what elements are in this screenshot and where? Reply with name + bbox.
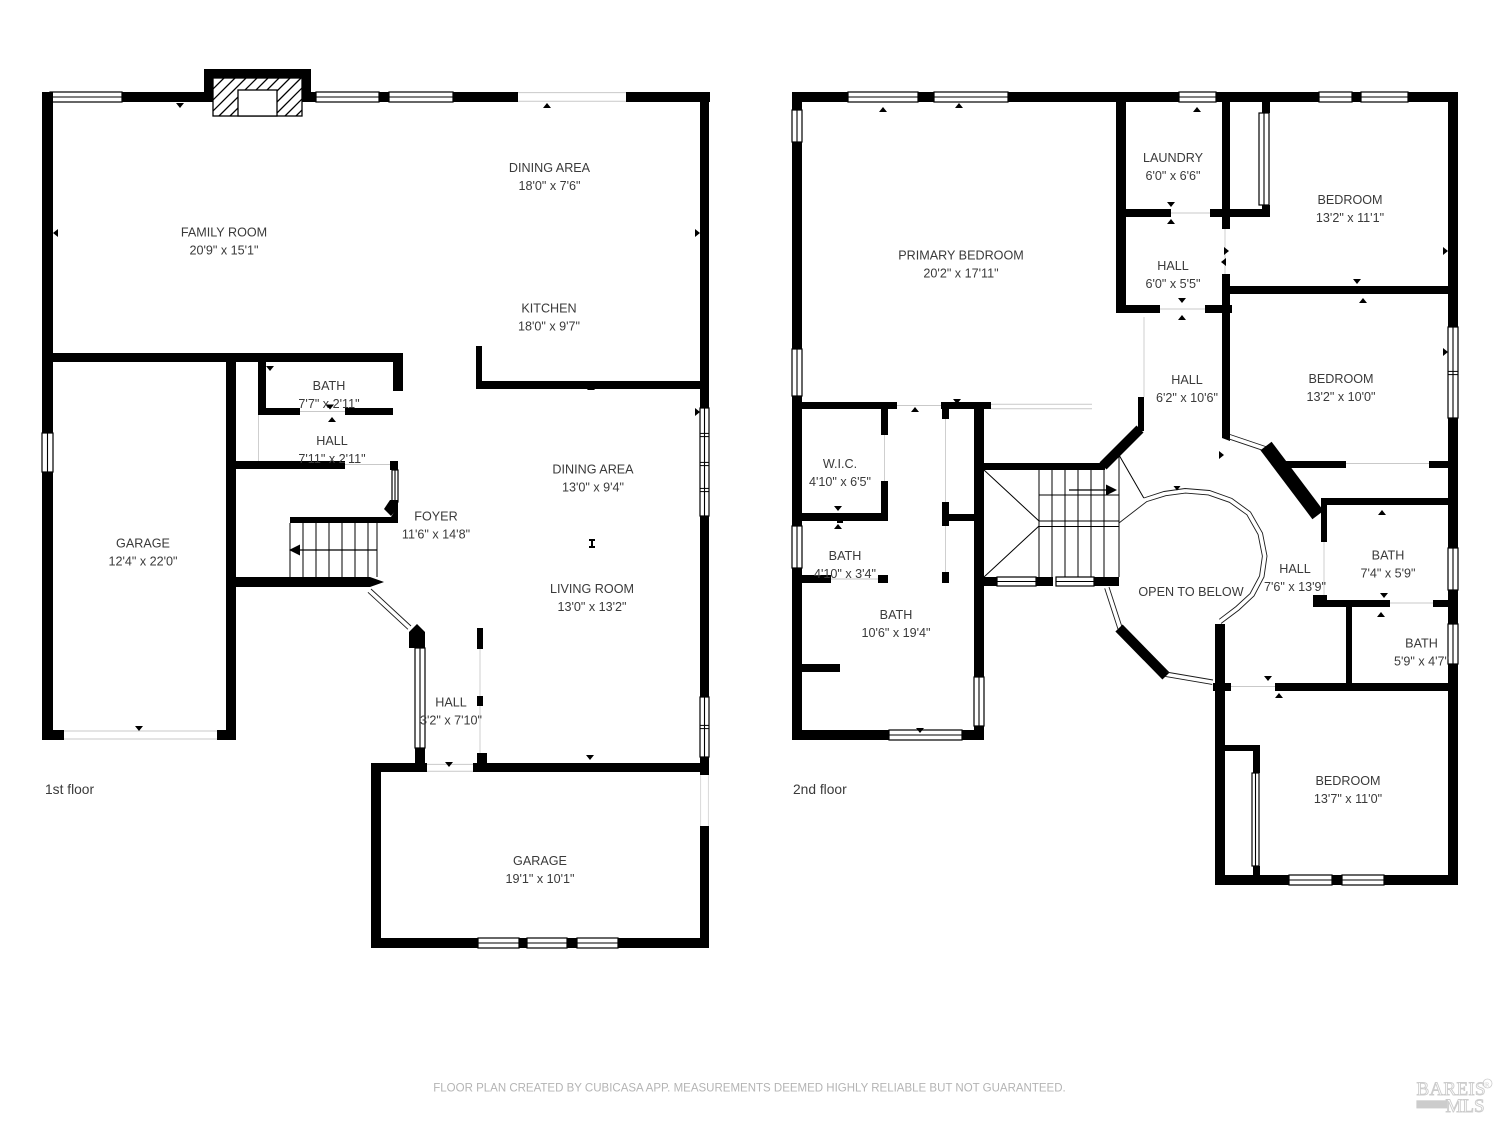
svg-text:13'2" x 10'0": 13'2" x 10'0" [1306, 390, 1375, 404]
svg-text:20'9" x 15'1": 20'9" x 15'1" [189, 244, 258, 258]
svg-text:HALL: HALL [1157, 259, 1189, 273]
svg-text:6'2" x 10'6": 6'2" x 10'6" [1156, 391, 1218, 405]
svg-text:7'4" x 5'9": 7'4" x 5'9" [1360, 567, 1415, 581]
svg-text:13'0" x 13'2": 13'0" x 13'2" [557, 600, 626, 614]
svg-text:BEDROOM: BEDROOM [1317, 193, 1382, 207]
svg-text:FLOOR PLAN CREATED BY CUBICASA: FLOOR PLAN CREATED BY CUBICASA APP. MEAS… [433, 1082, 1065, 1094]
svg-text:20'2" x 17'11": 20'2" x 17'11" [923, 267, 998, 281]
svg-text:R: R [1485, 1082, 1490, 1089]
svg-text:W.I.C.: W.I.C. [823, 457, 857, 471]
svg-text:7'6" x 13'9": 7'6" x 13'9" [1264, 580, 1326, 594]
svg-text:7'11" x 2'11": 7'11" x 2'11" [298, 452, 365, 466]
svg-text:HALL: HALL [1279, 562, 1311, 576]
svg-text:DINING AREA: DINING AREA [509, 161, 591, 175]
svg-text:3'2" x 7'10": 3'2" x 7'10" [420, 714, 482, 728]
svg-text:13'7" x 11'0": 13'7" x 11'0" [1314, 792, 1382, 806]
svg-text:LIVING ROOM: LIVING ROOM [550, 582, 634, 596]
svg-text:5'9" x 4'7": 5'9" x 4'7" [1394, 655, 1449, 669]
svg-text:13'0" x 9'4": 13'0" x 9'4" [562, 481, 624, 495]
svg-text:GARAGE: GARAGE [116, 537, 170, 551]
svg-text:KITCHEN: KITCHEN [521, 301, 576, 315]
svg-text:1st floor: 1st floor [45, 782, 94, 797]
svg-text:BATH: BATH [313, 379, 346, 393]
svg-text:GARAGE: GARAGE [513, 854, 567, 868]
svg-text:FAMILY ROOM: FAMILY ROOM [181, 226, 267, 240]
svg-text:BATH: BATH [1372, 549, 1405, 563]
svg-text:19'1" x 10'1": 19'1" x 10'1" [505, 872, 574, 886]
svg-text:10'6" x 19'4": 10'6" x 19'4" [861, 626, 930, 640]
svg-text:BATH: BATH [829, 549, 862, 563]
svg-text:BEDROOM: BEDROOM [1315, 774, 1380, 788]
svg-text:7'7" x 2'11": 7'7" x 2'11" [298, 397, 359, 411]
svg-text:12'4" x 22'0": 12'4" x 22'0" [108, 555, 177, 569]
svg-text:4'10" x 6'5": 4'10" x 6'5" [809, 475, 871, 489]
svg-text:DINING AREA: DINING AREA [552, 463, 634, 477]
svg-text:MLS: MLS [1446, 1096, 1485, 1117]
svg-text:LAUNDRY: LAUNDRY [1143, 151, 1204, 165]
svg-text:13'2" x 11'1": 13'2" x 11'1" [1316, 211, 1384, 225]
svg-text:OPEN TO BELOW: OPEN TO BELOW [1138, 585, 1243, 599]
svg-text:HALL: HALL [1171, 373, 1203, 387]
svg-text:2nd floor: 2nd floor [793, 782, 847, 797]
svg-text:HALL: HALL [316, 434, 348, 448]
svg-text:6'0" x 6'6": 6'0" x 6'6" [1145, 169, 1200, 183]
svg-text:BATH: BATH [1405, 637, 1438, 651]
svg-text:11'6" x 14'8": 11'6" x 14'8" [402, 528, 470, 542]
svg-text:BATH: BATH [880, 608, 913, 622]
svg-text:18'0" x 9'7": 18'0" x 9'7" [518, 320, 580, 334]
svg-text:FOYER: FOYER [414, 510, 457, 524]
svg-text:6'0" x 5'5": 6'0" x 5'5" [1145, 277, 1200, 291]
svg-text:HALL: HALL [435, 696, 467, 710]
svg-text:PRIMARY BEDROOM: PRIMARY BEDROOM [898, 249, 1024, 263]
svg-text:BEDROOM: BEDROOM [1308, 372, 1373, 386]
svg-text:18'0" x 7'6": 18'0" x 7'6" [518, 179, 580, 193]
svg-text:4'10" x 3'4": 4'10" x 3'4" [814, 567, 876, 581]
